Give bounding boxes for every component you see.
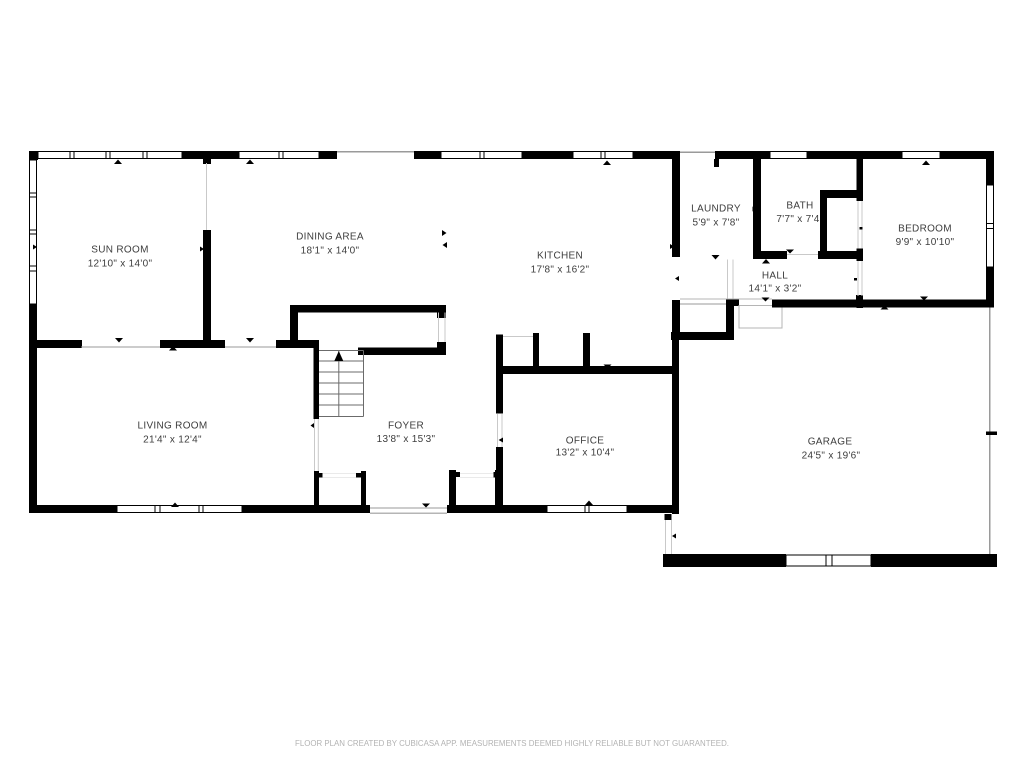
svg-text:21'4" x 12'4": 21'4" x 12'4" xyxy=(143,435,202,446)
svg-text:18'1" x 14'0": 18'1" x 14'0" xyxy=(301,246,360,257)
svg-text:5'9" x 7'8": 5'9" x 7'8" xyxy=(692,218,739,229)
svg-text:FOYER: FOYER xyxy=(388,421,424,432)
svg-text:OFFICE: OFFICE xyxy=(566,436,604,447)
svg-text:BATH: BATH xyxy=(786,201,813,212)
svg-text:13'2" x 10'4": 13'2" x 10'4" xyxy=(556,448,615,459)
svg-text:24'5" x 19'6": 24'5" x 19'6" xyxy=(802,451,861,462)
svg-text:GARAGE: GARAGE xyxy=(808,437,853,448)
svg-text:BEDROOM: BEDROOM xyxy=(898,224,952,235)
svg-text:14'1" x 3'2": 14'1" x 3'2" xyxy=(749,284,802,295)
svg-text:LIVING ROOM: LIVING ROOM xyxy=(138,421,208,432)
svg-text:9'9" x 10'10": 9'9" x 10'10" xyxy=(896,237,955,248)
svg-text:LAUNDRY: LAUNDRY xyxy=(691,204,741,215)
svg-text:KITCHEN: KITCHEN xyxy=(537,251,583,262)
svg-text:7'7" x 7'4: 7'7" x 7'4 xyxy=(776,214,819,225)
svg-text:13'8" x 15'3": 13'8" x 15'3" xyxy=(377,434,436,445)
svg-text:HALL: HALL xyxy=(762,271,788,282)
svg-text:17'8" x 16'2": 17'8" x 16'2" xyxy=(531,265,590,276)
svg-text:FLOOR PLAN CREATED BY CUBICASA: FLOOR PLAN CREATED BY CUBICASA APP. MEAS… xyxy=(295,739,729,748)
svg-text:12'10" x 14'0": 12'10" x 14'0" xyxy=(88,259,153,270)
svg-text:SUN ROOM: SUN ROOM xyxy=(91,245,148,256)
svg-text:DINING AREA: DINING AREA xyxy=(296,232,364,243)
